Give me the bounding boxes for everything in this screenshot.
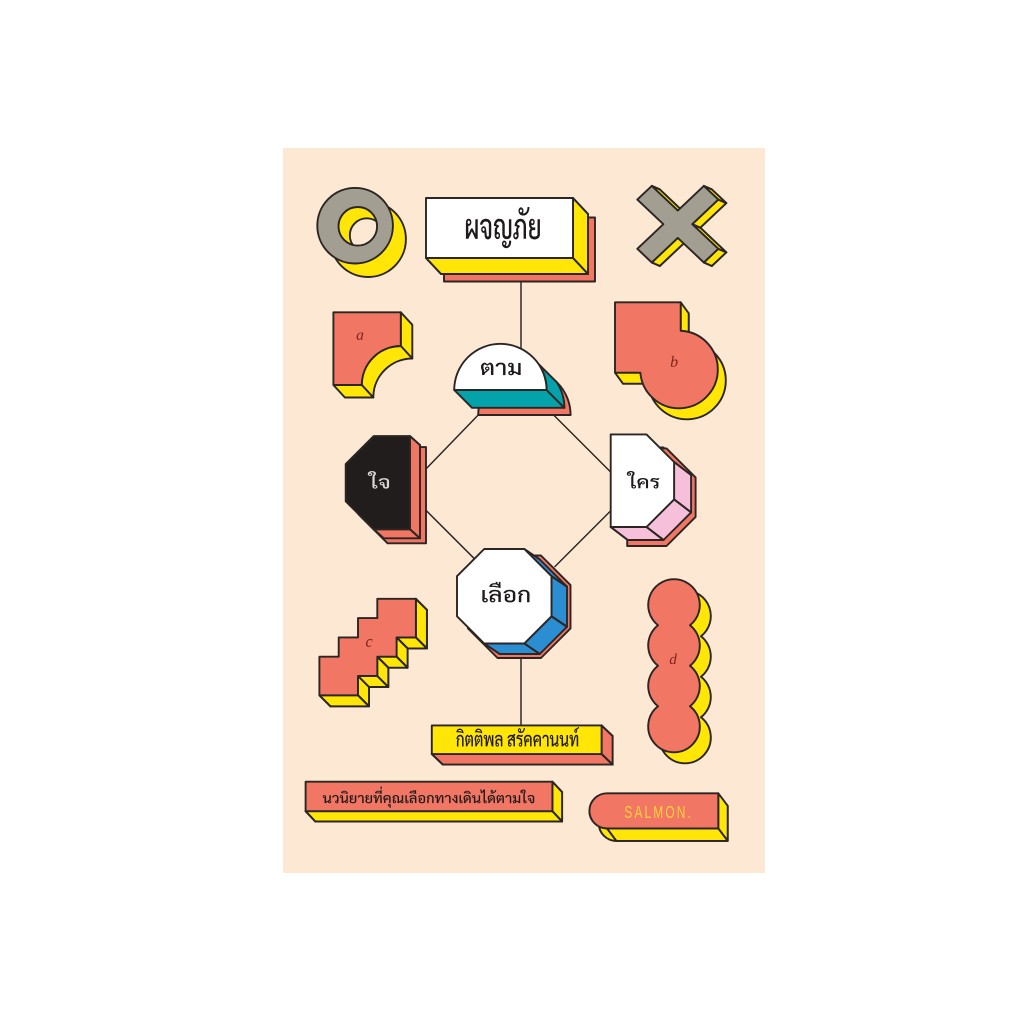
svg-text:SALMON.: SALMON. xyxy=(624,803,690,823)
